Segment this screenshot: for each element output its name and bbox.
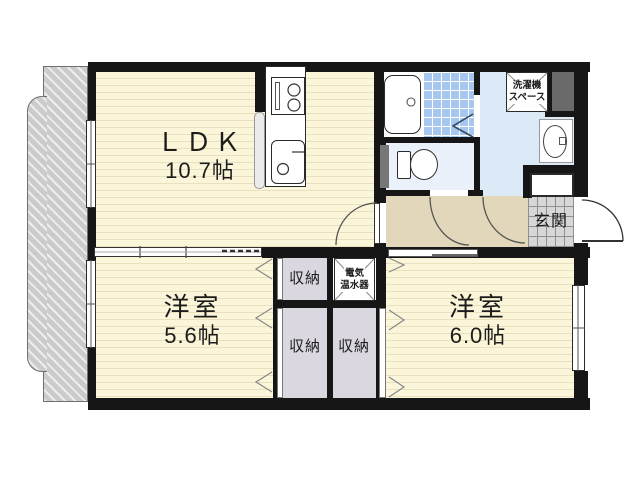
toilet-door-arc xyxy=(430,197,469,245)
closet-chevron-right-1 xyxy=(389,258,404,272)
ldk-door-arc xyxy=(336,203,377,245)
closet-right-label: 収納 xyxy=(330,338,378,356)
bedroom-west-area: 5.6帖 xyxy=(164,323,221,348)
bedroom-west-name: 洋室 xyxy=(163,293,221,323)
water-heater-line2: 温水器 xyxy=(339,280,370,292)
washer-space-line2: スペース xyxy=(508,92,547,104)
entrance-door-arc xyxy=(582,200,623,241)
washroom-door-arc xyxy=(483,197,525,243)
entrance-label: 玄関 xyxy=(526,212,576,232)
bedroom-west-label: 洋室 5.6帖 xyxy=(110,290,275,352)
bedroom-east-name: 洋室 xyxy=(449,293,507,323)
closet-chevron-left-1 xyxy=(256,259,272,279)
closet-chevron-right-3 xyxy=(389,377,404,397)
ldk-label: ＬＤＫ 10.7帖 xyxy=(120,126,280,186)
ldk-area: 10.7帖 xyxy=(165,158,235,183)
water-heater-label: 電気 温水器 xyxy=(334,262,375,298)
bathtub-drain-icon xyxy=(407,98,415,106)
bedroom-east-label: 洋室 6.0帖 xyxy=(398,290,558,352)
plan-line-overlay xyxy=(0,0,640,480)
washer-space-label: 洗濯機 スペース xyxy=(506,75,548,109)
bedroom-east-area: 6.0帖 xyxy=(450,323,507,348)
water-heater-line1: 電気 xyxy=(344,268,365,280)
closet-top-label: 収納 xyxy=(281,270,329,288)
closet-chevron-left-3 xyxy=(256,372,272,392)
washer-space-line1: 洗濯機 xyxy=(512,80,543,92)
stove-burner-icon-1 xyxy=(288,84,300,96)
floor-plan: ＬＤＫ 10.7帖 洋室 5.6帖 洋室 6.0帖 玄関 収納 収納 収納 電気… xyxy=(0,0,640,480)
stove-burner-icon-2 xyxy=(288,99,300,111)
bathroom-folding-door-icon xyxy=(453,114,473,137)
ldk-name: ＬＤＫ xyxy=(156,128,243,158)
closet-left-label: 収納 xyxy=(281,338,329,356)
